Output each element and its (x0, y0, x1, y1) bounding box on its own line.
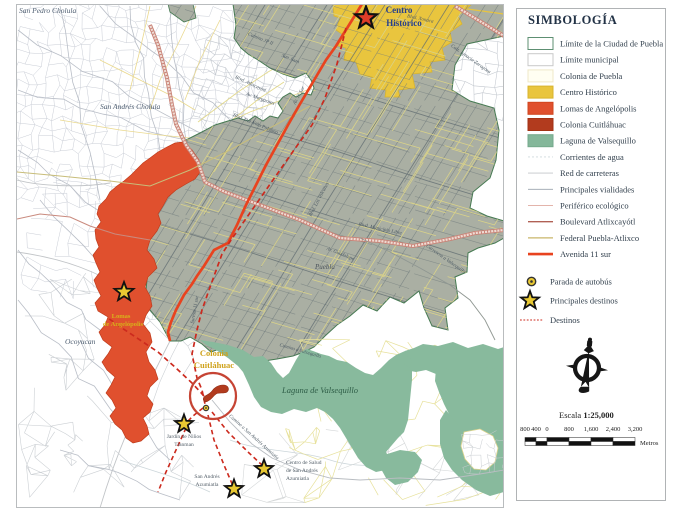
svg-text:Principales destinos: Principales destinos (550, 296, 618, 306)
svg-text:San Pedro Cholula: San Pedro Cholula (19, 6, 76, 15)
svg-text:Red de carreteras: Red de carreteras (560, 168, 619, 178)
svg-text:Colonia Cuitláhuac: Colonia Cuitláhuac (560, 120, 626, 130)
svg-text:Tlanman: Tlanman (174, 442, 194, 448)
svg-text:Azumiatla: Azumiatla (286, 476, 309, 482)
svg-text:Parada de autobús: Parada de autobús (550, 277, 612, 287)
svg-text:Límite de la Ciudad de Puebla: Límite de la Ciudad de Puebla (560, 39, 663, 49)
svg-text:Laguna de Valsequillo: Laguna de Valsequillo (560, 136, 636, 146)
svg-text:Metros: Metros (640, 440, 659, 447)
svg-text:Destinos: Destinos (550, 315, 580, 325)
svg-text:Puebla: Puebla (314, 263, 335, 271)
svg-text:Cuitláhuac: Cuitláhuac (194, 360, 234, 370)
svg-text:3,200: 3,200 (628, 426, 643, 433)
svg-text:Lomas: Lomas (112, 313, 131, 320)
svg-text:Azumiatla: Azumiatla (196, 482, 219, 488)
svg-text:2,400: 2,400 (606, 426, 621, 433)
svg-text:Federal Puebla-Atlixco: Federal Puebla-Atlixco (560, 233, 639, 243)
svg-text:800: 800 (564, 426, 574, 433)
svg-text:0: 0 (545, 426, 548, 433)
svg-text:de Angelópolis: de Angelópolis (103, 321, 144, 328)
svg-text:Escala 1:25,000: Escala 1:25,000 (559, 410, 614, 420)
svg-text:Laguna de Valsequillo: Laguna de Valsequillo (281, 385, 358, 395)
svg-text:San Andrés: San Andrés (194, 474, 219, 480)
svg-text:Colonia de Puebla: Colonia de Puebla (560, 71, 623, 81)
svg-text:Ocoyucan: Ocoyucan (65, 337, 96, 346)
svg-text:Centro: Centro (386, 5, 413, 15)
svg-text:Corrientes de agua: Corrientes de agua (560, 152, 624, 162)
svg-text:800: 800 (520, 426, 530, 433)
svg-text:Centro Histórico: Centro Histórico (560, 87, 617, 97)
svg-text:400: 400 (531, 426, 541, 433)
svg-text:Periférico ecológico: Periférico ecológico (560, 201, 629, 211)
svg-text:Lomas de Angelópolis: Lomas de Angelópolis (560, 103, 637, 113)
svg-text:Centro de Salud: Centro de Salud (286, 460, 322, 466)
svg-text:Principales vialidades: Principales vialidades (560, 184, 634, 194)
svg-text:Límite municipal: Límite municipal (560, 55, 619, 65)
svg-text:Avenida 11 sur: Avenida 11 sur (560, 249, 611, 259)
svg-text:de San Andrés: de San Andrés (286, 468, 318, 474)
svg-text:Boulevard Atlixcayótl: Boulevard Atlixcayótl (560, 217, 636, 227)
svg-text:Jardín de Niños: Jardín de Niños (167, 434, 202, 440)
svg-text:San Andrés Cholula: San Andrés Cholula (100, 102, 161, 111)
svg-text:1,600: 1,600 (584, 426, 599, 433)
svg-text:Colonia: Colonia (200, 348, 229, 358)
svg-text:SIMBOLOGÍA: SIMBOLOGÍA (528, 13, 617, 27)
